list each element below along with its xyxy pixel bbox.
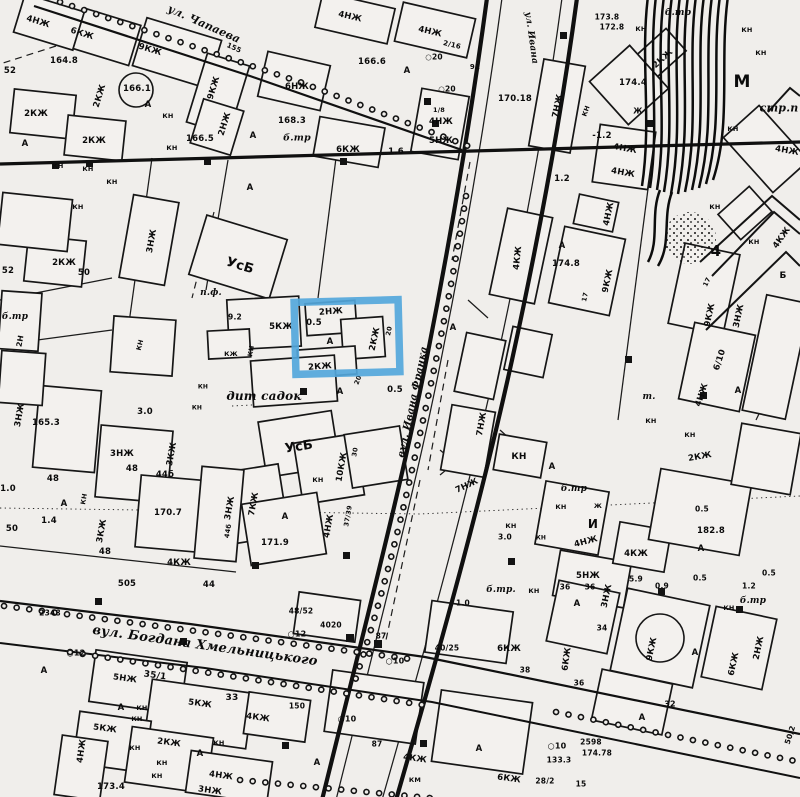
map-label: б.тр — [665, 7, 692, 18]
map-label: 1.4 — [41, 516, 57, 526]
map-label: КН — [645, 417, 656, 425]
map-label: б.тр — [561, 483, 588, 494]
map-label: 2НЖ — [319, 306, 344, 318]
map-label: КН — [635, 25, 646, 33]
map-label: 87 — [376, 632, 387, 641]
map-label: 133.3 — [547, 756, 572, 765]
map-label: 36 — [560, 583, 571, 592]
map-label: 48 — [99, 547, 111, 557]
map-label: 2348 — [39, 609, 61, 618]
map-label: И — [588, 517, 598, 531]
map-label: 170.7 — [154, 508, 182, 518]
map-label: 6НЖ — [285, 82, 309, 92]
map-label: 5НЖ — [429, 136, 453, 146]
map-label: КН — [52, 162, 63, 170]
map-label: КН — [555, 503, 566, 511]
map-label: А — [574, 599, 581, 609]
map-label: 52 — [2, 266, 14, 276]
map-label: КН — [213, 739, 224, 747]
map-label: А — [639, 713, 646, 723]
map-label: 38 — [520, 666, 531, 675]
map-label: 3.0 — [137, 407, 153, 417]
map-label: 4 — [711, 242, 722, 260]
map-label: 1.0 — [456, 599, 470, 608]
map-label: А — [250, 131, 257, 141]
map-label: А — [282, 512, 289, 522]
map-label: А — [450, 323, 457, 333]
map-label: КН — [741, 26, 752, 34]
map-label: КН — [82, 165, 93, 173]
map-label: п.ф. — [200, 288, 222, 298]
map-label: 48/52 — [289, 607, 314, 616]
map-label: 36 — [574, 679, 585, 688]
map-label: 174.78 — [582, 749, 612, 758]
map-label: 0.5 — [695, 505, 709, 514]
map-label: 0.5 — [387, 385, 403, 395]
map-label: 30 — [350, 446, 360, 457]
map-label: КН — [72, 203, 83, 211]
map-label: КН — [192, 405, 202, 412]
map-label: 150 — [289, 702, 305, 711]
map-label: 0.5 — [762, 569, 776, 578]
map-label: 36 — [585, 583, 596, 592]
map-label: 2598 — [580, 738, 602, 747]
map-label: 9.2 — [228, 313, 242, 322]
map-label: 32 — [664, 700, 676, 709]
map-label: 168.3 — [278, 116, 306, 126]
map-label: КН — [151, 772, 162, 780]
map-label: КН — [684, 431, 695, 439]
map-label: 182.8 — [697, 526, 725, 536]
map-label: 34 — [597, 624, 608, 633]
map-label: 166.6 — [358, 57, 386, 67]
map-label: 2КЖ — [24, 109, 48, 119]
map-label: 3НЖ — [110, 449, 134, 459]
map-label: А — [692, 648, 699, 658]
map-label: Ж — [594, 502, 602, 510]
scanned-map-page: 4НЖ6КЖ9КЖул. Чапаева155164.8166.12КЖ2КЖ2… — [0, 0, 800, 797]
map-label: 48 — [47, 474, 59, 484]
map-label: ○12 — [288, 630, 307, 639]
map-label: 173.8 — [595, 13, 620, 22]
map-label: А — [41, 666, 48, 676]
map-label: б.тр — [740, 595, 767, 606]
map-label: 0.9 — [655, 582, 669, 591]
map-label: 4КЖ — [167, 558, 191, 568]
map-label: 166.5 — [186, 134, 214, 144]
map-label: 5НЖ — [576, 571, 600, 581]
map-label: 15 — [576, 780, 587, 789]
map-label: 28/2 — [535, 777, 554, 786]
map-label: А — [327, 337, 334, 347]
map-label: б.тр — [2, 311, 29, 322]
map-label: 6КЖ — [497, 644, 521, 654]
map-label: 44 — [203, 580, 215, 590]
map-label: КН — [755, 49, 766, 57]
map-label: КН — [198, 384, 208, 391]
map-label: 5.9 — [629, 575, 643, 584]
map-label: А — [735, 386, 742, 396]
map-label: КН — [511, 452, 526, 462]
map-label: КН — [129, 744, 140, 752]
map-label: 2КЖ — [52, 258, 76, 268]
map-label: КН — [528, 587, 539, 595]
map-label: 505 — [118, 579, 136, 589]
map-label: КН — [723, 604, 734, 612]
map-label: 5КЖ — [269, 322, 293, 332]
map-label: КН — [748, 238, 759, 246]
stipple-area — [664, 212, 716, 264]
map-label: КН — [727, 125, 738, 133]
map-label: КЖ — [224, 350, 238, 358]
map-label: КН — [709, 203, 720, 211]
street-label: стр.п — [760, 102, 799, 115]
map-label: Ж — [633, 107, 643, 116]
map-label: А — [145, 100, 152, 110]
map-label: 165.3 — [32, 418, 60, 428]
map-label: 50 — [6, 524, 18, 534]
map-label: 1.6 — [388, 147, 404, 157]
map-label: 48 — [126, 464, 138, 474]
map-label: ○10 — [386, 657, 405, 666]
map-label: 0.5 — [306, 318, 322, 328]
map-label: 44б — [156, 469, 174, 480]
map-label: М — [733, 72, 750, 92]
map-label: 170.18 — [498, 94, 532, 104]
map-label: 0.5 — [693, 574, 707, 583]
map-label: 4020 — [320, 621, 342, 630]
map-label: А — [404, 66, 411, 76]
map-label: А — [559, 241, 566, 251]
map-label: 6КЖ — [336, 145, 360, 155]
map-label: КМ — [409, 776, 421, 784]
map-label: А — [337, 387, 344, 397]
map-label: КН — [536, 535, 546, 542]
map-label: 92 — [470, 63, 480, 71]
map-label: А — [118, 703, 125, 713]
map-label: 52 — [4, 66, 16, 76]
map-label: 50 — [78, 268, 90, 278]
street-label: дит садок — [226, 389, 302, 403]
map-label: 166.1 — [123, 84, 151, 94]
map-label: КН — [312, 476, 323, 484]
map-label: КН — [166, 144, 177, 152]
map-label: ○20 — [425, 53, 443, 62]
map-label: 3.0 — [498, 533, 512, 542]
map-label: КН — [131, 715, 142, 723]
map-label: 87 — [372, 740, 383, 749]
map-label: 2КЖ — [82, 136, 106, 146]
map-label: КН — [156, 759, 167, 767]
map-label: 1/8 — [433, 106, 445, 114]
map-label: ○12 — [67, 649, 86, 658]
map-label: КН — [106, 178, 117, 186]
map-label: Б — [779, 271, 786, 281]
map-label: А — [61, 499, 68, 509]
map-label: 164.8 — [50, 56, 78, 66]
map-label: б.тр. — [486, 584, 516, 595]
map-label: ○10 — [548, 742, 567, 751]
map-label: 174.8 — [552, 259, 580, 269]
map-canvas: 4НЖ6КЖ9КЖул. Чапаева155164.8166.12КЖ2КЖ2… — [0, 0, 800, 797]
map-label: А — [314, 758, 321, 768]
map-label: 4НЖ — [429, 117, 453, 127]
map-label: 4КЖ — [624, 549, 648, 559]
map-label: А — [22, 139, 29, 149]
map-label: А — [698, 544, 705, 554]
map-label: А — [549, 462, 556, 472]
map-label: 40/25 — [435, 644, 460, 653]
map-label: КН — [505, 522, 516, 530]
map-label: б.тр — [283, 133, 311, 144]
map-label: 171.9 — [261, 538, 289, 548]
map-label: А — [197, 749, 204, 759]
map-label: А — [476, 744, 483, 754]
map-label: т. — [642, 392, 655, 402]
map-label: 173.4 — [97, 782, 125, 792]
map-label: -1.2 — [592, 131, 611, 141]
map-label: ○20 — [438, 85, 456, 94]
map-label: 33 — [226, 693, 239, 703]
map-label: А — [247, 183, 254, 193]
map-label: КН — [136, 704, 147, 712]
map-label: ○10 — [338, 715, 357, 724]
map-label: 1.0 — [0, 484, 16, 494]
map-label: 172.8 — [600, 23, 625, 32]
map-label: 174.4 — [619, 78, 647, 88]
map-label: 1.2 — [742, 582, 756, 591]
map-label: 1.2 — [554, 174, 570, 184]
map-label: КН — [162, 112, 173, 120]
